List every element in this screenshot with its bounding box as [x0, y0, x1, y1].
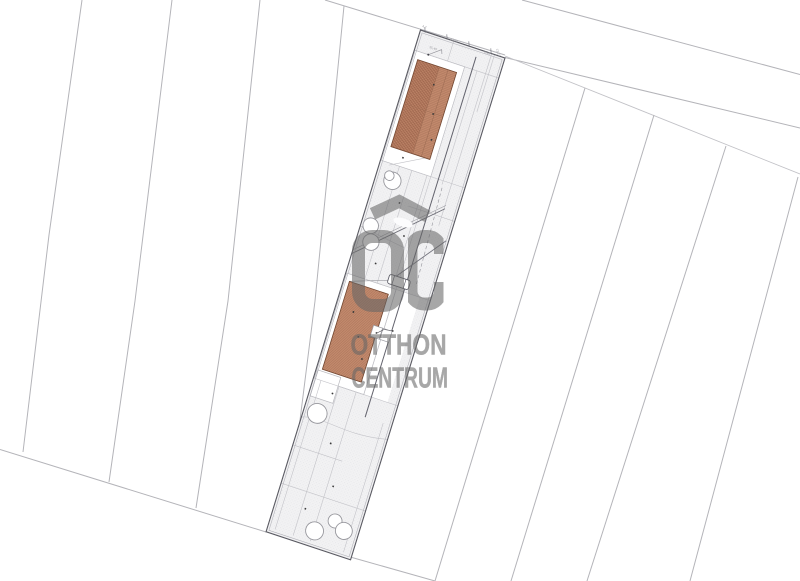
svg-text:CENTRUM: CENTRUM	[352, 363, 449, 395]
svg-text:OTTHON: OTTHON	[351, 330, 447, 362]
